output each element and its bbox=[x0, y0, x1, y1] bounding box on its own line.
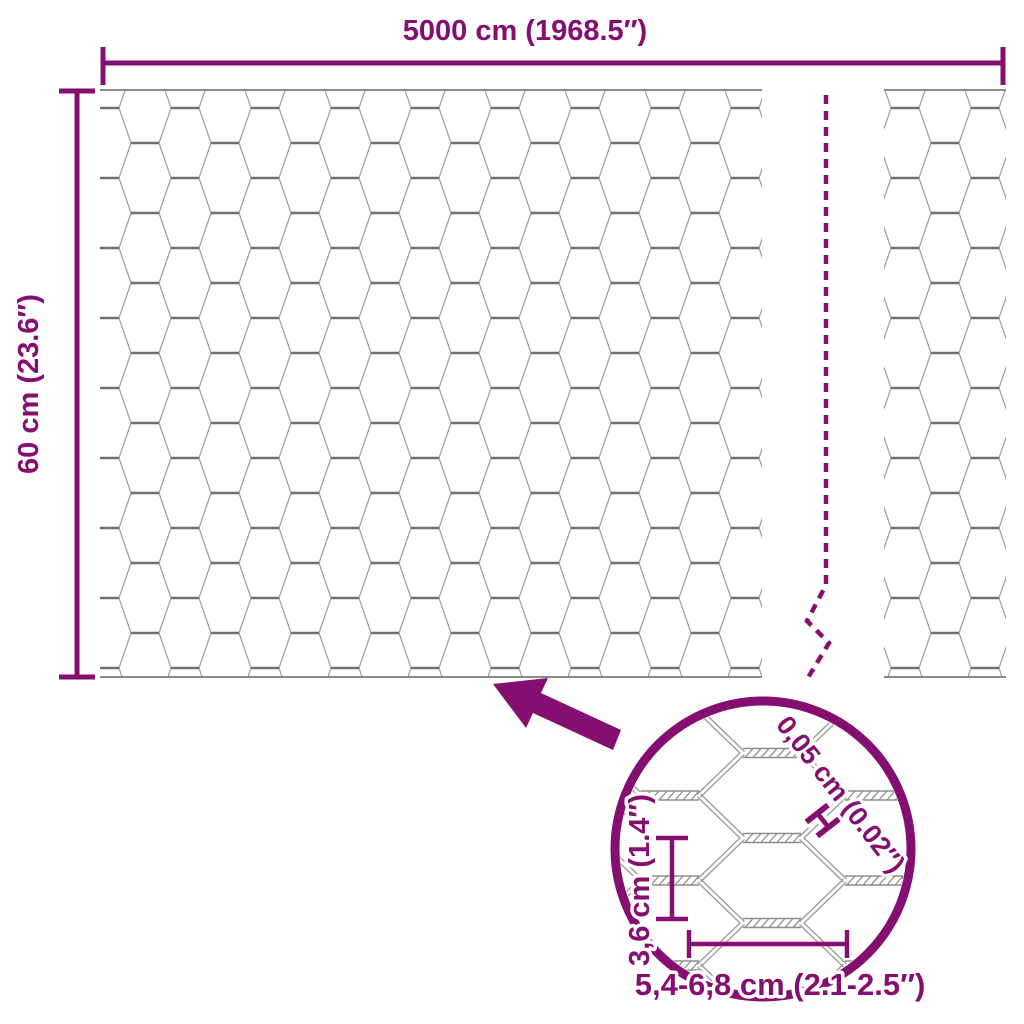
height-label: 60 cm (23.6″) bbox=[13, 294, 45, 474]
detail-circle: 0,05 cm (0.02″) H 3,6 cm (1.4″) 5,4-6,8 … bbox=[615, 701, 925, 1002]
width-dimension-line bbox=[103, 47, 1003, 85]
height-dimension: 60 cm (23.6″) bbox=[13, 91, 95, 677]
height-dimension-line bbox=[59, 91, 95, 677]
width-label: 5000 cm (1968.5″) bbox=[403, 15, 647, 47]
detail-width-label: 5,4-6,8 cm (2.1-2.5″) bbox=[635, 967, 926, 1002]
mesh-break-line bbox=[806, 95, 829, 681]
wire-mesh-dimension-diagram: 5000 cm (1968.5″) 60 cm (23.6″) 0,05 cm … bbox=[0, 0, 1024, 1024]
main-mesh bbox=[100, 90, 762, 677]
secondary-mesh bbox=[884, 90, 1006, 677]
zoom-arrow-icon bbox=[493, 678, 621, 750]
diagram-canvas: 5000 cm (1968.5″) 60 cm (23.6″) 0,05 cm … bbox=[0, 0, 1024, 1024]
detail-height-label: 3,6 cm (1.4″) bbox=[624, 794, 656, 966]
secondary-mesh-area bbox=[884, 90, 1006, 677]
main-mesh-area bbox=[100, 90, 762, 677]
width-dimension: 5000 cm (1968.5″) bbox=[103, 15, 1003, 85]
